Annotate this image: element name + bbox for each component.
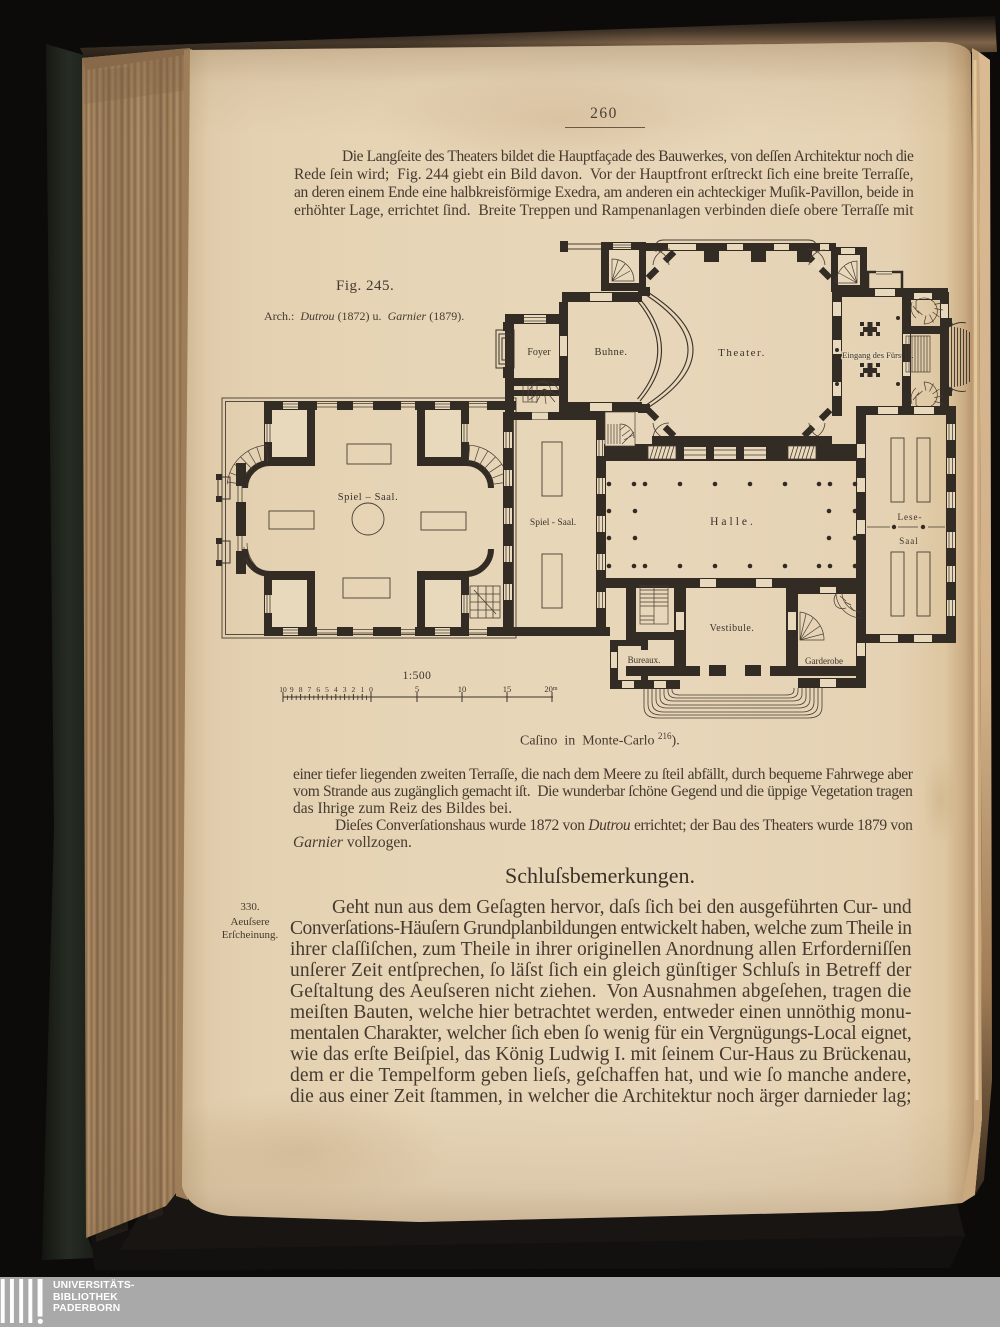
svg-text:Foyer: Foyer	[527, 347, 551, 358]
svg-text:2: 2	[352, 685, 356, 694]
svg-text:Halle.: Halle.	[710, 516, 756, 528]
svg-text:Spiel – Saal.: Spiel – Saal.	[338, 492, 399, 503]
svg-text:6: 6	[316, 685, 320, 694]
svg-text:3: 3	[343, 685, 347, 694]
svg-text:4: 4	[334, 685, 338, 694]
svg-text:5: 5	[415, 684, 419, 694]
svg-text:Garderobe: Garderobe	[805, 656, 843, 666]
svg-text:10: 10	[458, 684, 467, 694]
svg-text:Theater.: Theater.	[718, 347, 766, 359]
svg-text:1:500: 1:500	[403, 670, 432, 682]
svg-text:Saal: Saal	[899, 536, 919, 546]
svg-text:7: 7	[308, 685, 312, 694]
svg-text:Lese-: Lese-	[898, 512, 923, 522]
svg-text:Vestibule.: Vestibule.	[710, 623, 755, 634]
svg-text:15: 15	[503, 684, 512, 694]
svg-text:20m: 20m	[544, 684, 558, 694]
svg-text:5: 5	[325, 685, 329, 694]
svg-text:1: 1	[360, 685, 364, 694]
svg-text:9: 9	[290, 685, 294, 694]
svg-text:Bureaux.: Bureaux.	[628, 655, 661, 665]
svg-text:Buhne.: Buhne.	[594, 347, 627, 358]
svg-text:10: 10	[279, 685, 287, 694]
svg-text:0: 0	[369, 685, 373, 694]
svg-text:8: 8	[299, 685, 303, 694]
svg-text:Spiel - Saal.: Spiel - Saal.	[530, 518, 576, 528]
